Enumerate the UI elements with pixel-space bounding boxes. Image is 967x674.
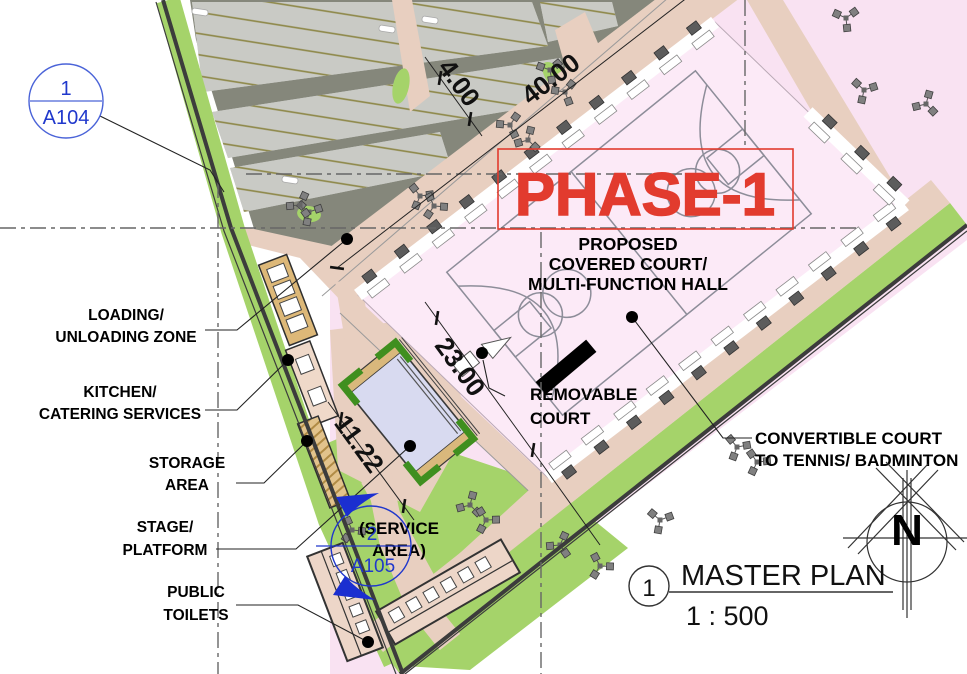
label-loading-line1: LOADING/	[88, 307, 164, 324]
label-stage-line1: STAGE/	[137, 519, 194, 536]
callout-a105-sheet: A105	[351, 556, 395, 577]
drawing-scale: 1 : 500	[686, 601, 769, 631]
court-title-line2: COVERED COURT/	[549, 254, 708, 274]
north-letter: N	[891, 506, 923, 555]
label-storage-line2: AREA	[165, 477, 209, 494]
label-removable-line1: REMOVABLE	[530, 385, 637, 404]
callout-a104-number: 1	[60, 78, 71, 100]
site-plan-canvas: 4.00 40.00 23.00 11.22 PHASE-1 PROPOSED …	[0, 0, 967, 674]
label-stage-line2: PLATFORM	[123, 542, 208, 559]
court-title-line1: PROPOSED	[578, 234, 677, 254]
label-convertible-line1: CONVERTIBLE COURT	[755, 429, 943, 448]
label-loading-line2: UNLOADING ZONE	[55, 329, 196, 346]
callout-a104[interactable]: 1 A104	[29, 64, 103, 138]
label-toilets-line1: PUBLIC	[167, 584, 225, 601]
callout-a105-number: 2	[367, 524, 378, 545]
label-kitchen-line1: KITCHEN/	[83, 384, 157, 401]
label-storage-line1: STORAGE	[149, 455, 225, 472]
court-title-line3: MULTI-FUNCTION HALL	[528, 274, 728, 294]
label-removable-line2: COURT	[530, 409, 591, 428]
sheet-detail-number: 1	[642, 575, 655, 602]
label-convertible-line2: TO TENNIS/ BADMINTON	[755, 451, 958, 470]
drawing-title: MASTER PLAN	[681, 560, 886, 592]
callout-a104-sheet: A104	[43, 107, 90, 129]
phase-banner: PHASE-1	[498, 149, 793, 229]
master-plan-drawing: 4.00 40.00 23.00 11.22 PHASE-1 PROPOSED …	[0, 0, 967, 674]
phase-banner-text: PHASE-1	[515, 161, 775, 228]
label-kitchen-line2: CATERING SERVICES	[39, 406, 201, 423]
label-toilets-line2: TOILETS	[163, 607, 228, 624]
